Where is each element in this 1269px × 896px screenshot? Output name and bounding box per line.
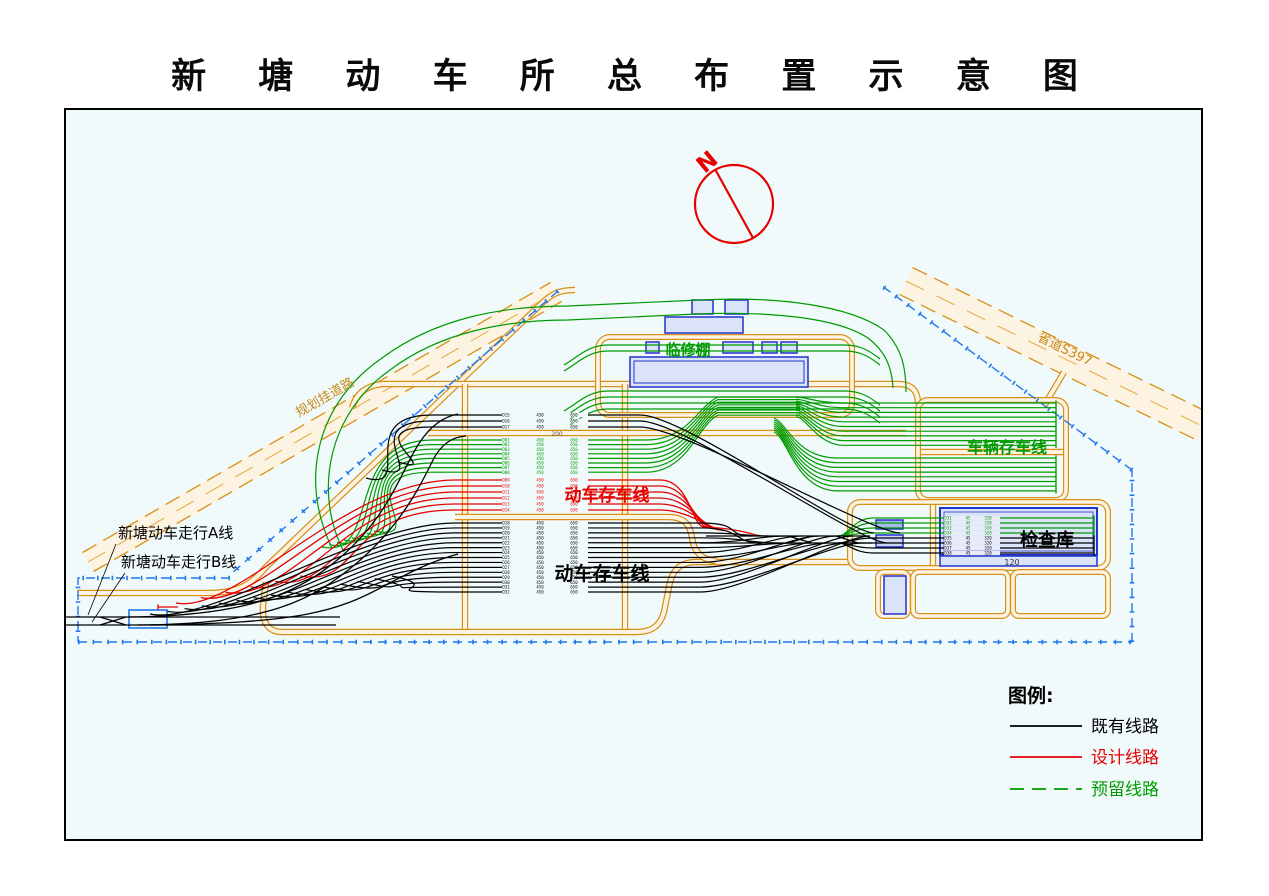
micro-track-label: D32 <box>502 590 510 595</box>
micro-track-label: D16 <box>502 419 510 424</box>
label-dongche-cunchexian-design: 动车存车线 <box>565 485 650 506</box>
micro-track-label: 650 <box>570 508 578 513</box>
micro-track-label: D13 <box>502 502 510 507</box>
label-band-number: 200 <box>551 431 563 438</box>
label-platform-length: 120 <box>1004 558 1019 567</box>
micro-depot-label: 45 <box>966 551 971 556</box>
site-plan-svg: D01450650D02450650D03450650D04450650D054… <box>0 0 1269 896</box>
micro-track-label: 450 <box>536 590 544 595</box>
legend-item-label: 设计线路 <box>1091 748 1159 768</box>
label-walk-line-b: 新塘动车走行B线 <box>121 553 236 571</box>
micro-track-label: D15 <box>502 413 510 418</box>
micro-track-label: D14 <box>502 508 510 513</box>
micro-track-label: 450 <box>536 478 544 483</box>
micro-track-label: 650 <box>570 419 578 424</box>
micro-track-label: 450 <box>536 496 544 501</box>
legend-title: 图例: <box>1008 684 1054 707</box>
micro-track-label: 650 <box>570 425 578 430</box>
micro-track-label: D11 <box>502 490 510 495</box>
micro-track-label: 450 <box>536 484 544 489</box>
micro-track-label: 450 <box>536 508 544 513</box>
micro-track-label: 450 <box>536 502 544 507</box>
micro-track-label: 650 <box>570 590 578 595</box>
micro-track-label: 650 <box>570 470 578 475</box>
micro-track-label: D09 <box>502 478 510 483</box>
micro-track-label: D10 <box>502 484 510 489</box>
micro-depot-label: D38 <box>944 551 952 556</box>
micro-track-label: 450 <box>536 470 544 475</box>
building-rect <box>692 300 713 314</box>
micro-track-label: 650 <box>570 413 578 418</box>
drawing-page: 新 塘 动 车 所 总 布 置 示 意 图 D01450650D02450650… <box>0 0 1269 896</box>
micro-track-label: 450 <box>536 419 544 424</box>
micro-track-label: D08 <box>502 470 510 475</box>
legend-item-label: 既有线路 <box>1091 717 1159 737</box>
label-linxiupeng: 临修棚 <box>665 341 710 359</box>
building-rect <box>884 576 906 614</box>
micro-track-label: 450 <box>536 425 544 430</box>
micro-track-label: 650 <box>570 478 578 483</box>
micro-track-label: D12 <box>502 496 510 501</box>
micro-track-label: 450 <box>536 490 544 495</box>
label-cheliang-cunchexian: 车辆存车线 <box>967 438 1047 457</box>
label-dongche-cunchexian-existing: 动车存车线 <box>554 562 649 585</box>
building-rect <box>665 317 743 333</box>
micro-depot-label: 320 <box>984 551 992 556</box>
micro-track-label: 450 <box>536 413 544 418</box>
building-rect <box>725 300 748 314</box>
legend-item-label: 预留线路 <box>1091 780 1159 800</box>
micro-track-label: D17 <box>502 425 510 430</box>
label-jianchaku: 检查库 <box>1020 529 1074 551</box>
label-walk-line-a: 新塘动车走行A线 <box>118 524 233 542</box>
